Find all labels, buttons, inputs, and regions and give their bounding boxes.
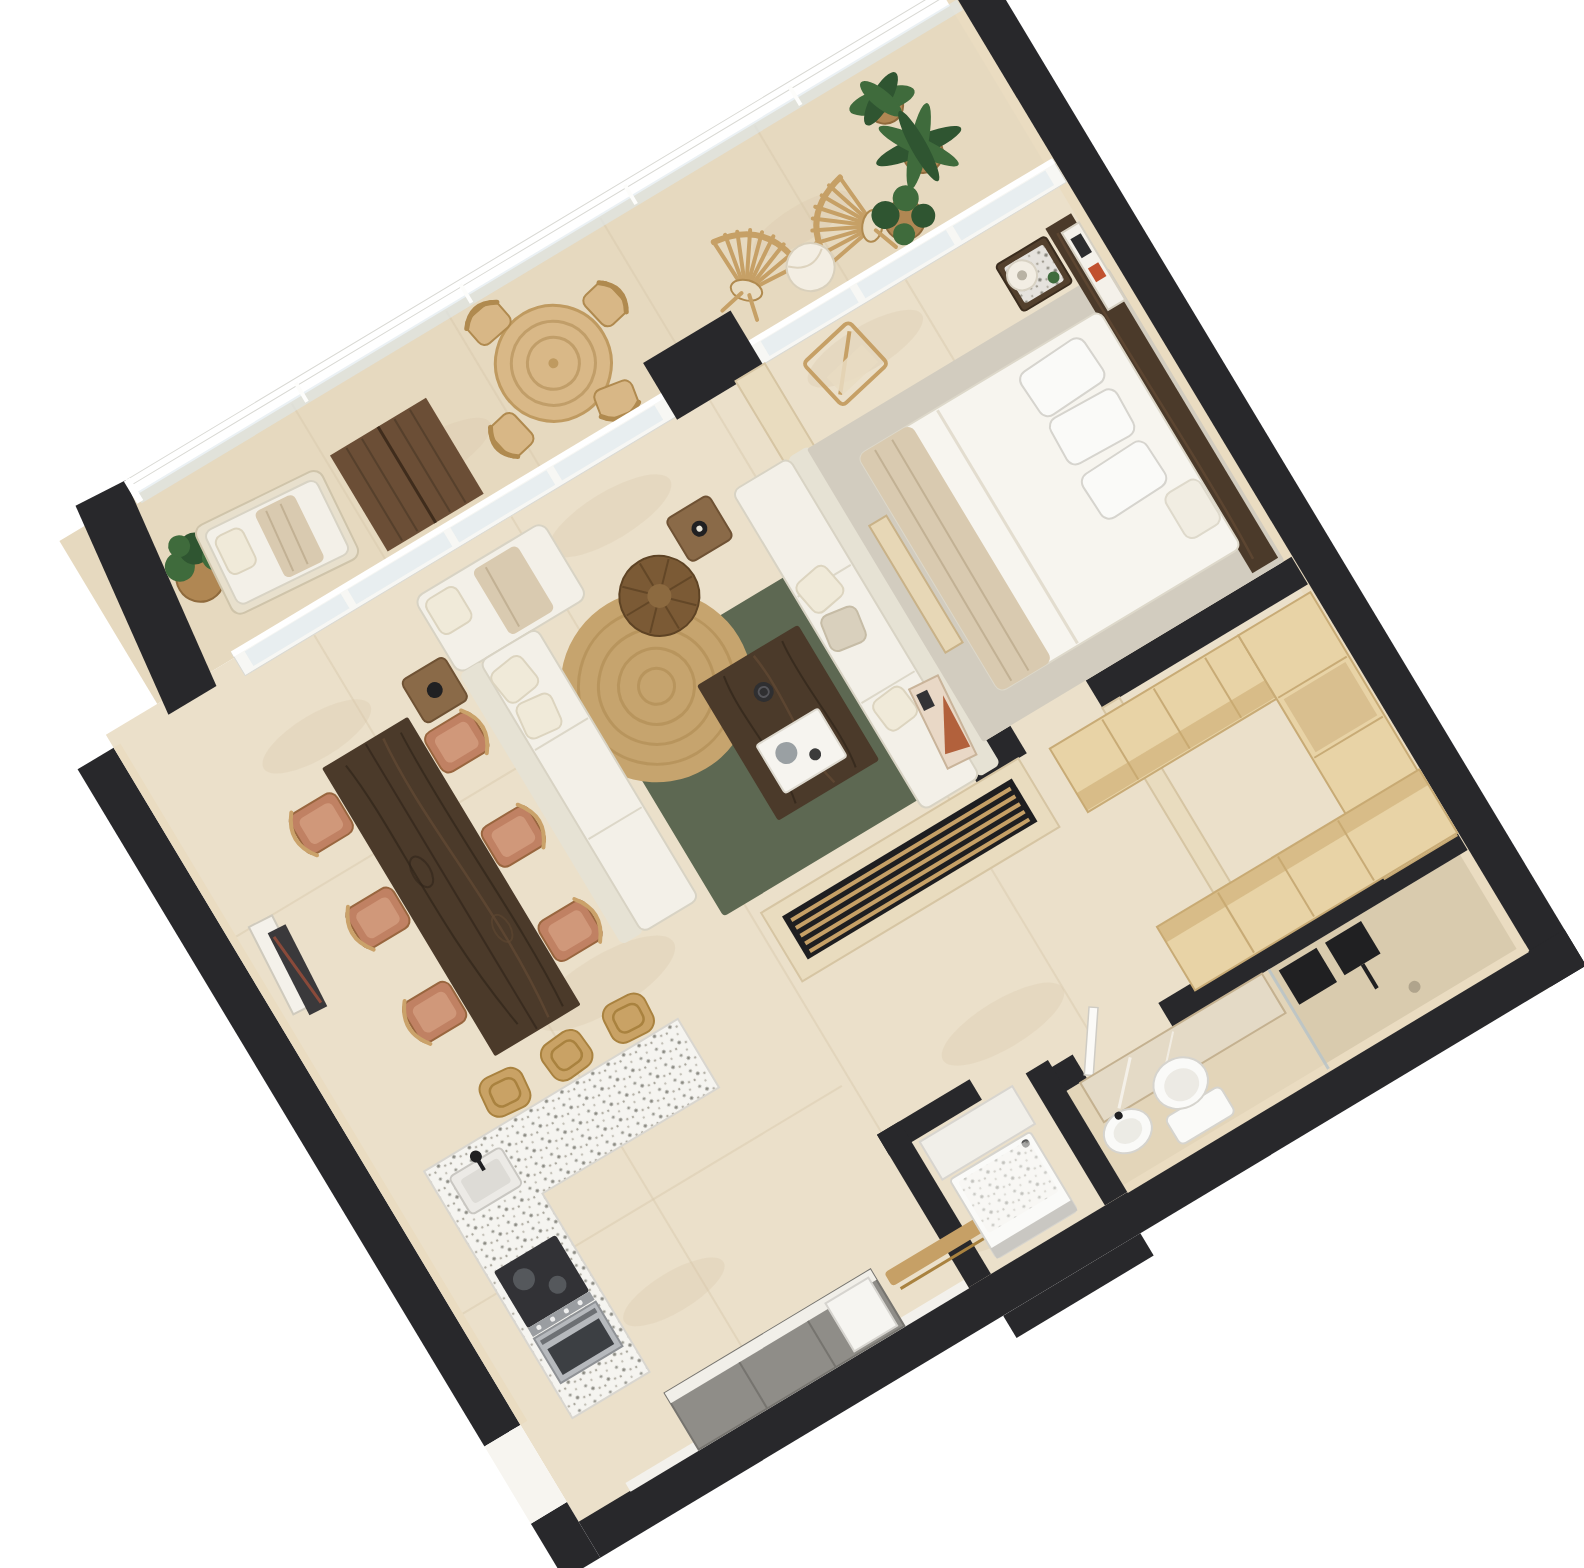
floor-plan-svg <box>0 0 1584 1568</box>
rotated-plan <box>0 0 1584 1568</box>
floor-plan-render <box>0 0 1584 1568</box>
